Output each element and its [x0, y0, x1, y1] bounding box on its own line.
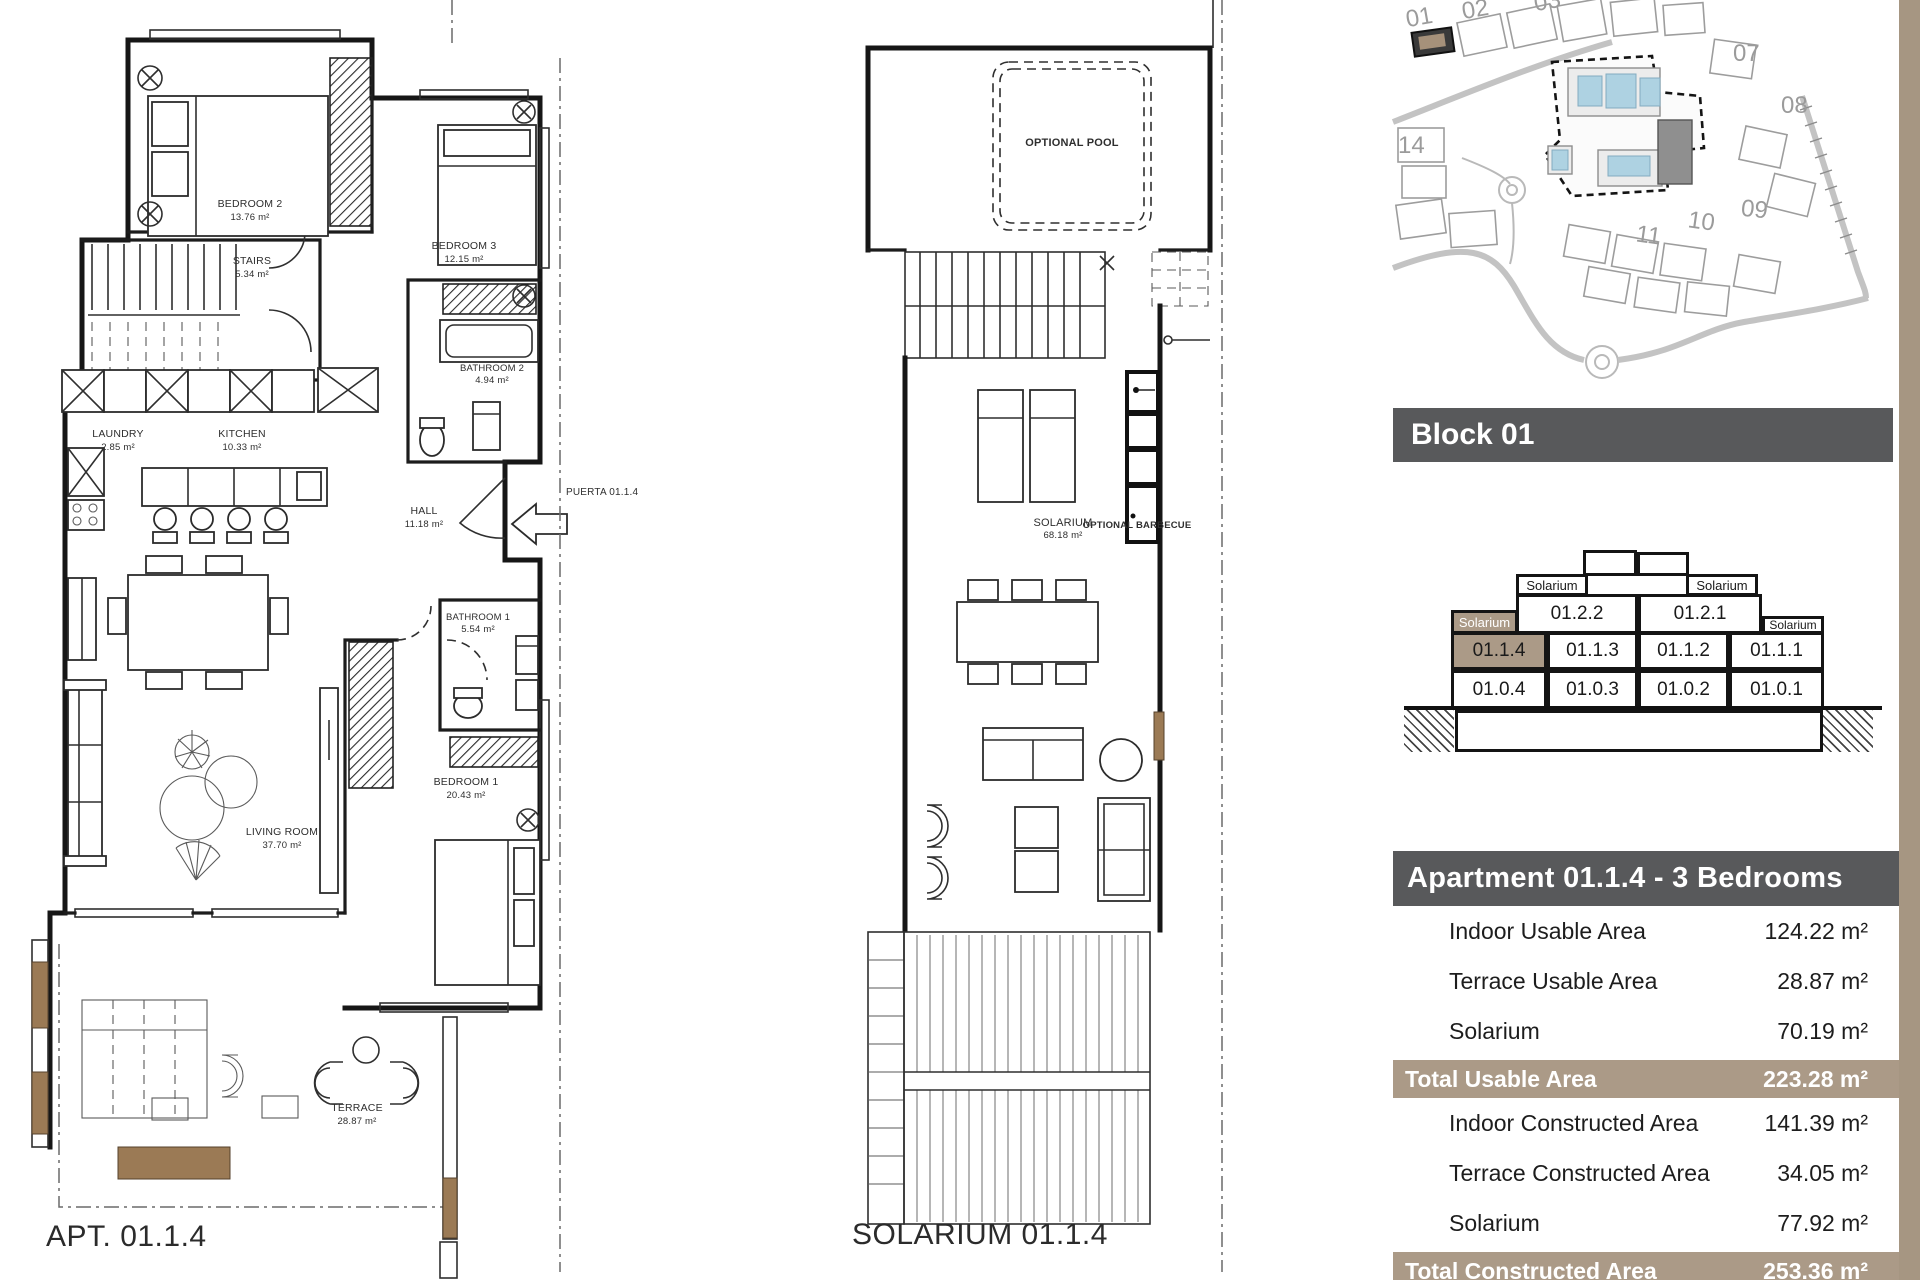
map-number-08: 08: [1781, 92, 1808, 120]
map-number-09: 09: [1740, 195, 1769, 226]
room-label-stairs: STAIRS 5.34 m²: [233, 255, 271, 281]
penthouse-right: [1637, 552, 1689, 576]
ground-hatch-right: [1823, 710, 1873, 752]
apartment-area-table: Indoor Usable Area 124.22 m² Terrace Usa…: [1393, 906, 1906, 1280]
solarium-plan-caption: SOLARIUM 01.1.4: [852, 1218, 1108, 1252]
unit-cell-0104: 01.0.4: [1451, 670, 1547, 710]
room-label-bathroom2: BATHROOM 2 4.94 m²: [460, 363, 524, 388]
room-label-living: LIVING ROOM 37.70 m²: [246, 826, 318, 852]
solarium-cell-top-right: Solarium: [1686, 574, 1758, 596]
unit-cell-0112: 01.1.2: [1638, 632, 1729, 670]
table-row: Solarium 77.92 m²: [1393, 1198, 1906, 1248]
table-row: Indoor Usable Area 124.22 m²: [1393, 906, 1906, 956]
brochure-page: BEDROOM 2 13.76 m² STAIRS 5.34 m² BEDROO…: [0, 0, 1920, 1280]
unit-cell-0101: 01.0.1: [1729, 670, 1824, 710]
room-label-bedroom2: BEDROOM 2 13.76 m²: [218, 198, 283, 224]
map-number-10: 10: [1686, 206, 1716, 237]
table-row: Solarium 70.19 m²: [1393, 1006, 1906, 1056]
unit-cell-0121: 01.2.1: [1638, 594, 1762, 634]
solarium-plan: [868, 0, 1222, 1272]
table-row: Indoor Constructed Area 141.39 m²: [1393, 1098, 1906, 1148]
basement-cell: [1455, 710, 1823, 752]
map-number-07: 07: [1733, 40, 1760, 68]
map-number-01: 01: [1404, 2, 1435, 34]
solarium-cell-top-left: Solarium: [1516, 574, 1588, 596]
unit-cell-0114-highlighted: 01.1.4: [1451, 632, 1547, 670]
room-label-laundry: LAUNDRY 2.85 m²: [92, 428, 143, 454]
unit-cell-0103: 01.0.3: [1547, 670, 1638, 710]
solarium-cell-left-highlighted: Solarium: [1451, 610, 1518, 634]
room-label-kitchen: KITCHEN 10.33 m²: [218, 428, 266, 454]
unit-cell-0102: 01.0.2: [1638, 670, 1729, 710]
unit-cell-0113: 01.1.3: [1547, 632, 1638, 670]
apartment-title-bar: Apartment 01.1.4 - 3 Bedrooms: [1393, 851, 1920, 906]
room-label-bedroom1: BEDROOM 1 20.43 m²: [434, 776, 499, 802]
optional-pool-label: OPTIONAL POOL: [1025, 136, 1118, 150]
room-label-terrace: TERRACE 28.87 m²: [331, 1102, 383, 1128]
entry-door-label: PUERTA 01.1.4: [566, 486, 638, 499]
block-title-bar: Block 01: [1393, 408, 1893, 462]
room-label-bedroom3: BEDROOM 3 12.15 m²: [432, 240, 497, 266]
map-number-14: 14: [1398, 132, 1425, 160]
penthouse-left: [1583, 550, 1637, 576]
site-map: [1393, 0, 1868, 378]
table-row-total-constructed: Total Constructed Area 253.36 m²: [1393, 1252, 1906, 1280]
apartment-plan-caption: APT. 01.1.4: [46, 1220, 207, 1254]
room-label-bathroom1: BATHROOM 1 5.54 m²: [446, 612, 510, 637]
map-number-11: 11: [1634, 220, 1663, 251]
table-row: Terrace Constructed Area 34.05 m²: [1393, 1148, 1906, 1198]
apartment-plan: [32, 0, 567, 1278]
barbecue-label: OPTIONAL BARBECUE: [1083, 520, 1192, 532]
room-label-hall: HALL 11.18 m²: [405, 505, 443, 531]
unit-cell-0111: 01.1.1: [1729, 632, 1824, 670]
page-edge-stripe: [1899, 0, 1920, 1280]
unit-cell-0122: 01.2.2: [1516, 594, 1638, 634]
table-row-total-usable: Total Usable Area 223.28 m²: [1393, 1060, 1906, 1098]
block-section-diagram: Solarium Solarium 01.2.2 01.2.1 Solarium…: [1412, 540, 1882, 760]
map-number-02: 02: [1460, 0, 1491, 26]
table-row: Terrace Usable Area 28.87 m²: [1393, 956, 1906, 1006]
ground-hatch-left: [1404, 710, 1454, 752]
